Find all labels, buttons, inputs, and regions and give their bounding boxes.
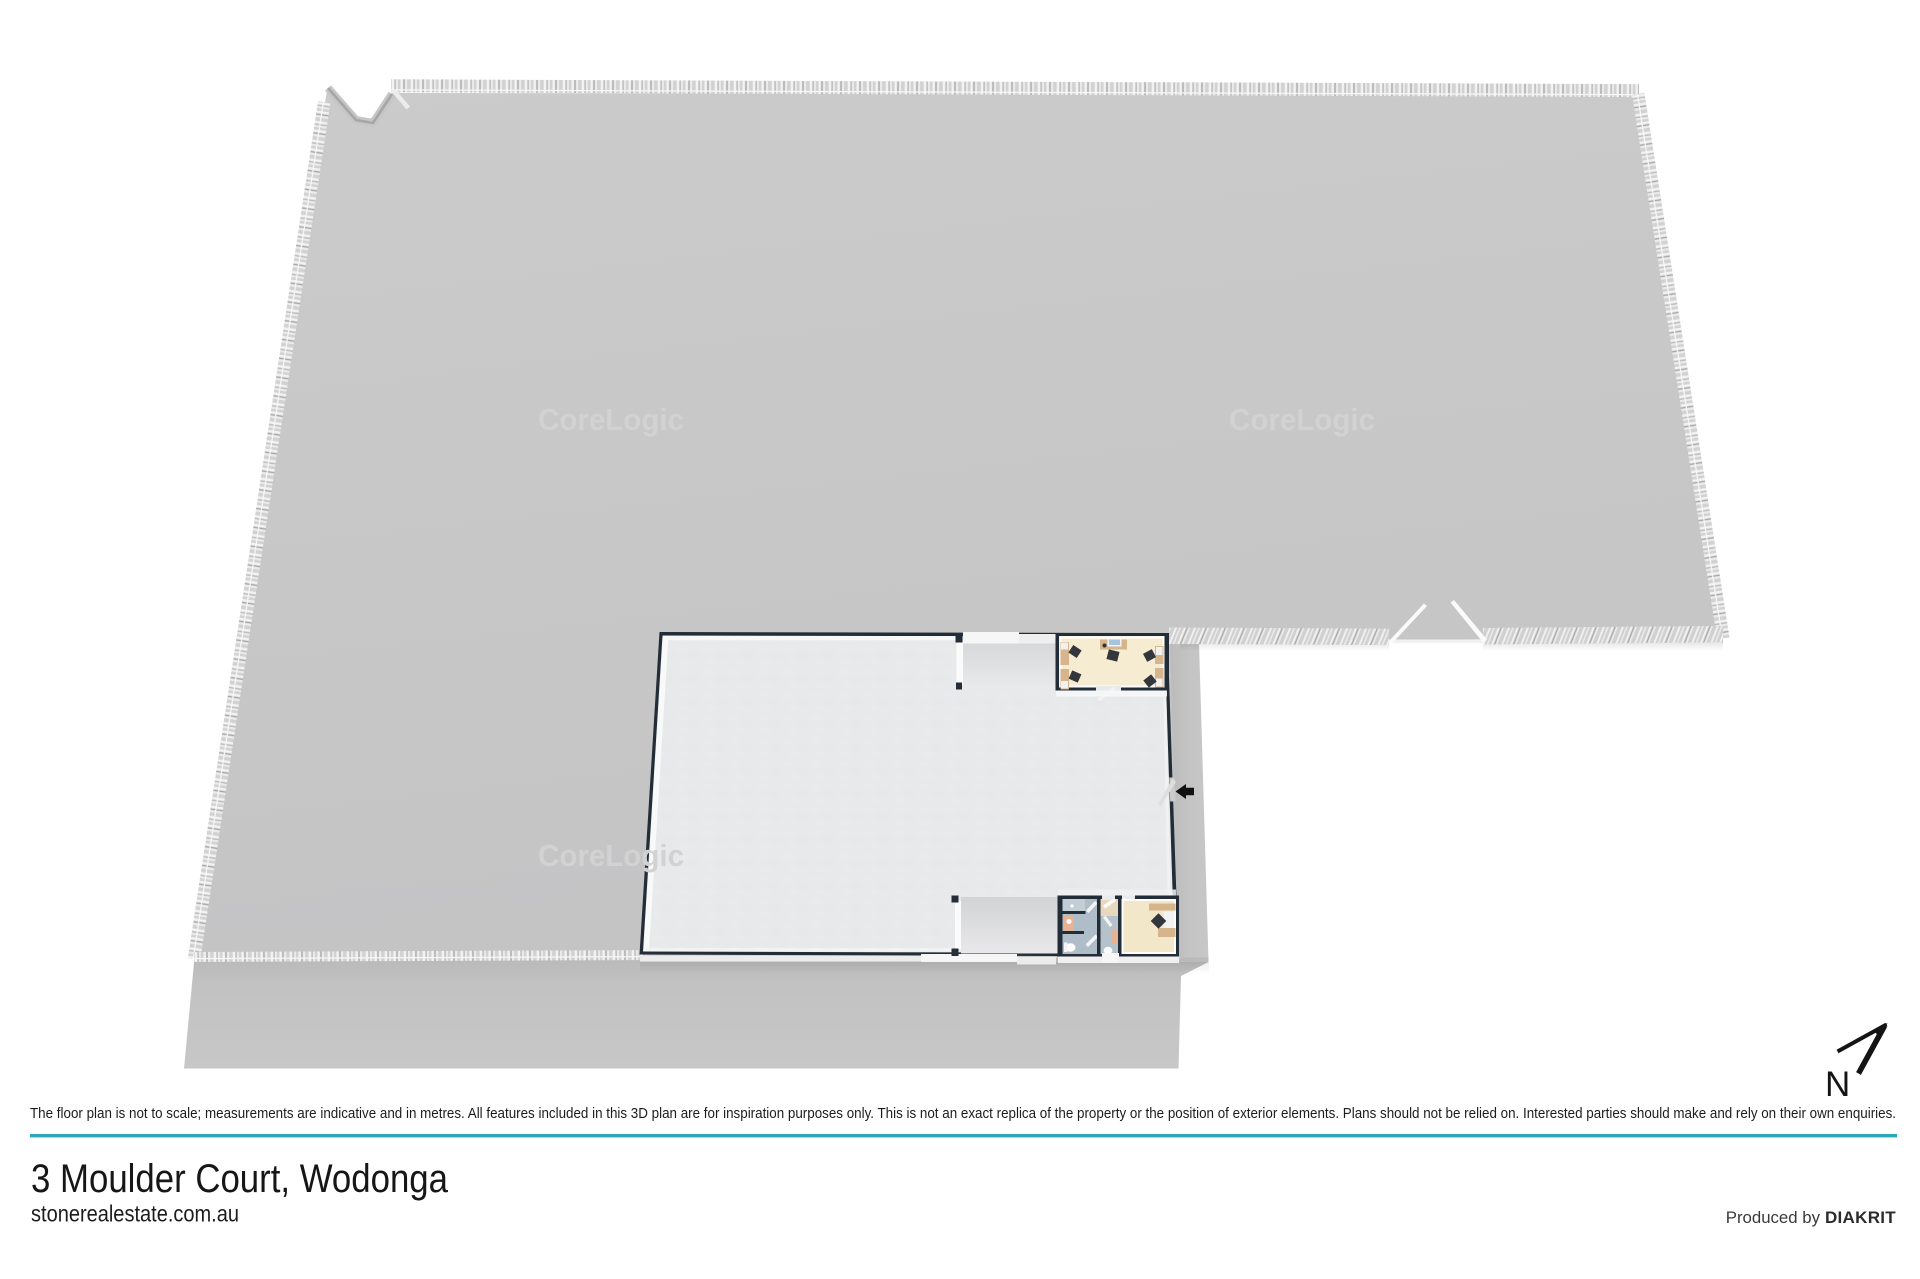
svg-text:The floor plan is not to scale: The floor plan is not to scale; measurem… — [30, 1105, 1896, 1122]
svg-text:CoreLogic: CoreLogic — [538, 838, 684, 873]
svg-text:N: N — [1825, 1065, 1850, 1104]
svg-text:DIAKRIT: DIAKRIT — [1825, 1208, 1896, 1227]
svg-text:CoreLogic: CoreLogic — [538, 402, 684, 437]
svg-text:3 Moulder Court, Wodonga: 3 Moulder Court, Wodonga — [31, 1157, 448, 1201]
svg-text:stonerealestate.com.au: stonerealestate.com.au — [31, 1201, 239, 1227]
svg-text:CoreLogic: CoreLogic — [1229, 402, 1375, 437]
svg-text:Produced by: Produced by — [1726, 1208, 1821, 1227]
